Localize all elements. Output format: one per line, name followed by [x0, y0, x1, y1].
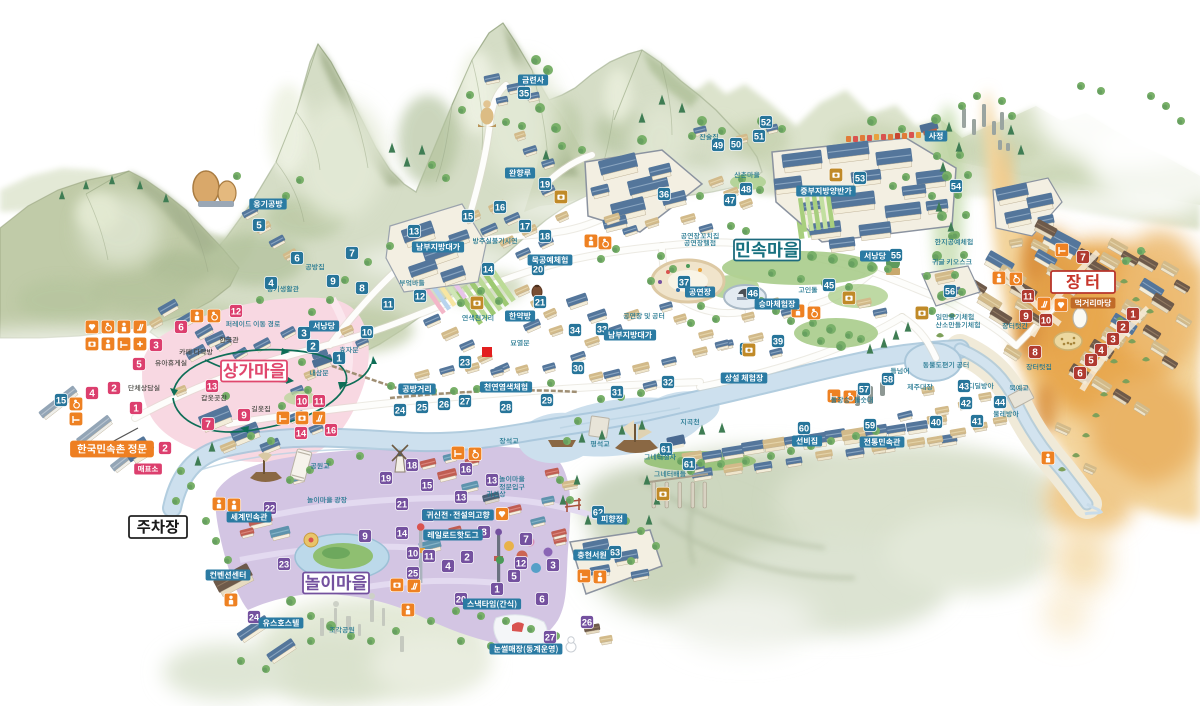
svg-text:1: 1 [494, 585, 500, 596]
svg-text:2: 2 [111, 384, 117, 395]
svg-text:6: 6 [178, 323, 184, 334]
svg-text:63: 63 [610, 548, 620, 558]
svg-text:5: 5 [1088, 356, 1094, 367]
svg-text:48: 48 [741, 185, 751, 195]
svg-text:23: 23 [460, 358, 470, 368]
svg-text:26: 26 [439, 400, 449, 410]
svg-text:10: 10 [408, 549, 418, 559]
svg-text:44: 44 [995, 398, 1006, 408]
svg-text:3: 3 [301, 329, 307, 340]
svg-text:8: 8 [359, 284, 365, 295]
svg-text:43: 43 [959, 382, 969, 392]
svg-text:28: 28 [501, 403, 511, 413]
svg-text:9: 9 [362, 532, 368, 543]
svg-text:2: 2 [1120, 323, 1126, 334]
svg-text:13: 13 [456, 493, 466, 503]
svg-text:7: 7 [523, 535, 529, 546]
svg-text:9: 9 [241, 411, 247, 422]
svg-text:1: 1 [336, 354, 342, 365]
svg-text:4: 4 [89, 389, 95, 400]
svg-text:45: 45 [824, 281, 834, 291]
svg-text:30: 30 [573, 364, 583, 374]
svg-text:57: 57 [859, 385, 869, 395]
svg-text:12: 12 [516, 559, 526, 569]
svg-text:2: 2 [162, 444, 168, 455]
svg-text:7: 7 [205, 420, 211, 431]
svg-text:16: 16 [326, 426, 336, 436]
svg-text:18: 18 [540, 232, 550, 242]
svg-text:24: 24 [395, 406, 406, 416]
svg-text:14: 14 [296, 429, 307, 439]
svg-text:1: 1 [133, 404, 139, 415]
svg-text:27: 27 [460, 397, 470, 407]
svg-text:10: 10 [297, 397, 307, 407]
svg-text:25: 25 [408, 569, 418, 579]
svg-text:27: 27 [545, 633, 555, 643]
svg-text:16: 16 [461, 465, 471, 475]
svg-text:8: 8 [1032, 348, 1038, 359]
svg-text:3: 3 [153, 341, 159, 352]
svg-text:5: 5 [511, 572, 517, 583]
svg-text:11: 11 [1023, 292, 1033, 302]
svg-text:37: 37 [679, 278, 689, 288]
svg-text:11: 11 [424, 552, 434, 562]
svg-text:40: 40 [931, 418, 941, 428]
svg-text:49: 49 [713, 141, 723, 151]
svg-text:50: 50 [731, 140, 741, 150]
svg-text:12: 12 [415, 292, 425, 302]
svg-text:51: 51 [754, 132, 764, 142]
svg-text:17: 17 [520, 222, 530, 232]
svg-text:47: 47 [725, 196, 735, 206]
svg-text:18: 18 [407, 461, 417, 471]
svg-text:24: 24 [249, 613, 260, 623]
svg-text:9: 9 [330, 277, 336, 288]
svg-text:15: 15 [422, 481, 432, 491]
svg-text:13: 13 [487, 476, 497, 486]
svg-text:34: 34 [570, 326, 581, 336]
svg-text:25: 25 [417, 403, 427, 413]
svg-text:61: 61 [684, 460, 694, 470]
svg-text:10: 10 [1041, 316, 1051, 326]
svg-text:19: 19 [540, 180, 550, 190]
svg-text:3: 3 [550, 561, 556, 572]
svg-text:2: 2 [310, 342, 316, 353]
svg-text:15: 15 [463, 212, 473, 222]
svg-text:14: 14 [483, 265, 494, 275]
svg-text:1: 1 [1130, 310, 1136, 321]
svg-text:4: 4 [1098, 346, 1104, 357]
svg-text:12: 12 [231, 307, 241, 317]
svg-text:7: 7 [1080, 253, 1086, 264]
svg-text:52: 52 [761, 118, 771, 128]
svg-text:6: 6 [539, 595, 545, 606]
svg-text:19: 19 [381, 474, 391, 484]
svg-text:36: 36 [659, 190, 669, 200]
svg-text:58: 58 [883, 375, 893, 385]
svg-text:21: 21 [535, 298, 545, 308]
svg-text:60: 60 [799, 424, 809, 434]
svg-text:7: 7 [349, 249, 355, 260]
svg-text:13: 13 [207, 382, 217, 392]
svg-text:31: 31 [612, 388, 622, 398]
svg-text:55: 55 [891, 251, 901, 261]
svg-text:15: 15 [56, 396, 66, 406]
svg-text:13: 13 [409, 227, 419, 237]
svg-text:5: 5 [256, 221, 262, 232]
svg-text:16: 16 [495, 203, 505, 213]
svg-text:32: 32 [663, 378, 673, 388]
svg-text:2: 2 [464, 553, 470, 564]
svg-text:23: 23 [279, 560, 289, 570]
svg-text:29: 29 [542, 396, 552, 406]
svg-text:5: 5 [136, 360, 142, 371]
svg-text:6: 6 [294, 254, 300, 265]
svg-text:42: 42 [961, 399, 971, 409]
svg-text:4: 4 [445, 562, 451, 573]
svg-text:53: 53 [855, 174, 865, 184]
svg-text:6: 6 [1077, 369, 1083, 380]
svg-text:56: 56 [945, 287, 955, 297]
svg-text:11: 11 [314, 397, 324, 407]
svg-text:39: 39 [773, 337, 783, 347]
svg-text:61: 61 [661, 445, 671, 455]
svg-text:59: 59 [865, 421, 875, 431]
svg-text:46: 46 [748, 289, 758, 299]
svg-text:54: 54 [951, 182, 962, 192]
svg-text:35: 35 [519, 89, 529, 99]
svg-text:9: 9 [1023, 312, 1029, 323]
svg-text:41: 41 [972, 417, 982, 427]
svg-text:26: 26 [582, 618, 592, 628]
svg-text:21: 21 [397, 500, 407, 510]
svg-text:10: 10 [362, 328, 372, 338]
svg-text:3: 3 [1110, 335, 1116, 346]
svg-text:14: 14 [397, 529, 408, 539]
svg-text:20: 20 [533, 265, 543, 275]
svg-text:11: 11 [383, 300, 393, 310]
